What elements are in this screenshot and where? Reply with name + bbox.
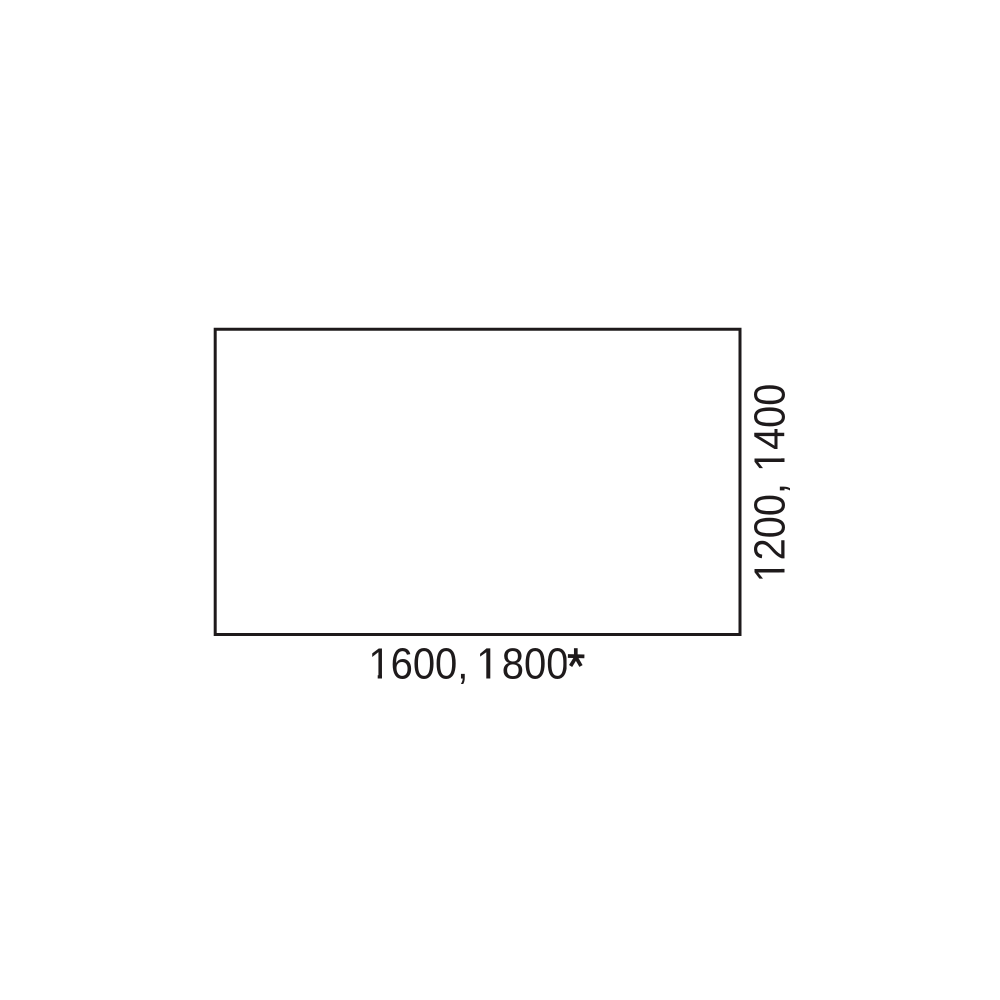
svg-text:1600, 1800*: 1600, 1800* <box>368 641 584 689</box>
svg-text:1200, 1400: 1200, 1400 <box>746 384 794 583</box>
